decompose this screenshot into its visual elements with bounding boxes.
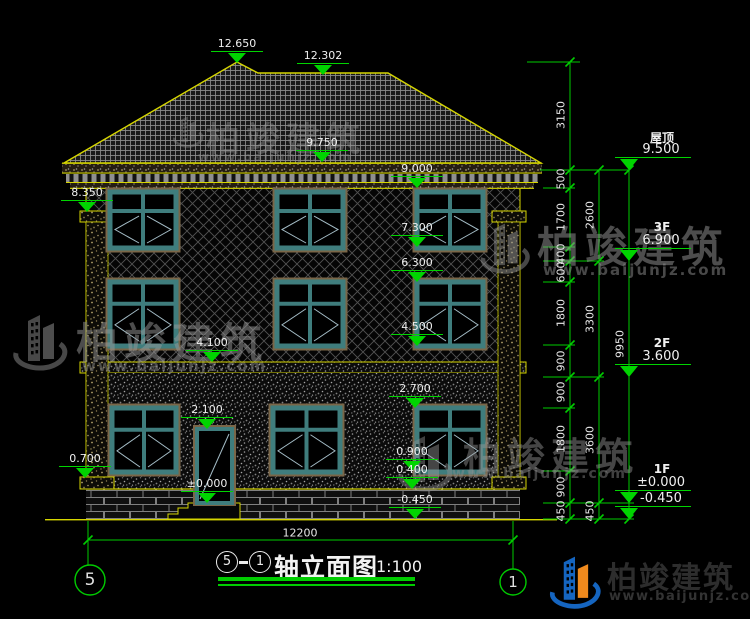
cornice-band: [62, 163, 542, 189]
axis-number-5: 5: [85, 570, 96, 590]
window: [414, 279, 487, 350]
window: [414, 405, 487, 476]
cad-elevation-drawing: 柏竣建筑www.baijunjz.com柏竣建筑www.baijunjz.com…: [0, 0, 750, 619]
title-axis-end-bubble: 1: [249, 551, 271, 573]
brand-url: www.baijunjz.com: [609, 589, 750, 604]
window: [270, 405, 344, 476]
belt-course: [80, 362, 526, 373]
ground-line: [45, 519, 557, 520]
title-axis-start-bubble: 5: [216, 551, 238, 573]
window: [414, 189, 487, 252]
title-underline-thick: [218, 577, 415, 581]
window: [107, 189, 180, 252]
title-dash: [239, 561, 248, 564]
window: [109, 405, 180, 476]
axis-number-1: 1: [508, 573, 518, 591]
plinth-brick: [86, 489, 520, 519]
hip-roof: [64, 62, 541, 163]
window: [274, 279, 347, 350]
entry-door: [194, 426, 235, 505]
window: [274, 189, 347, 252]
title-underline-thin: [218, 584, 415, 586]
title-scale: 1:100: [376, 557, 422, 576]
window: [107, 279, 180, 350]
building-elevation: [0, 0, 750, 619]
